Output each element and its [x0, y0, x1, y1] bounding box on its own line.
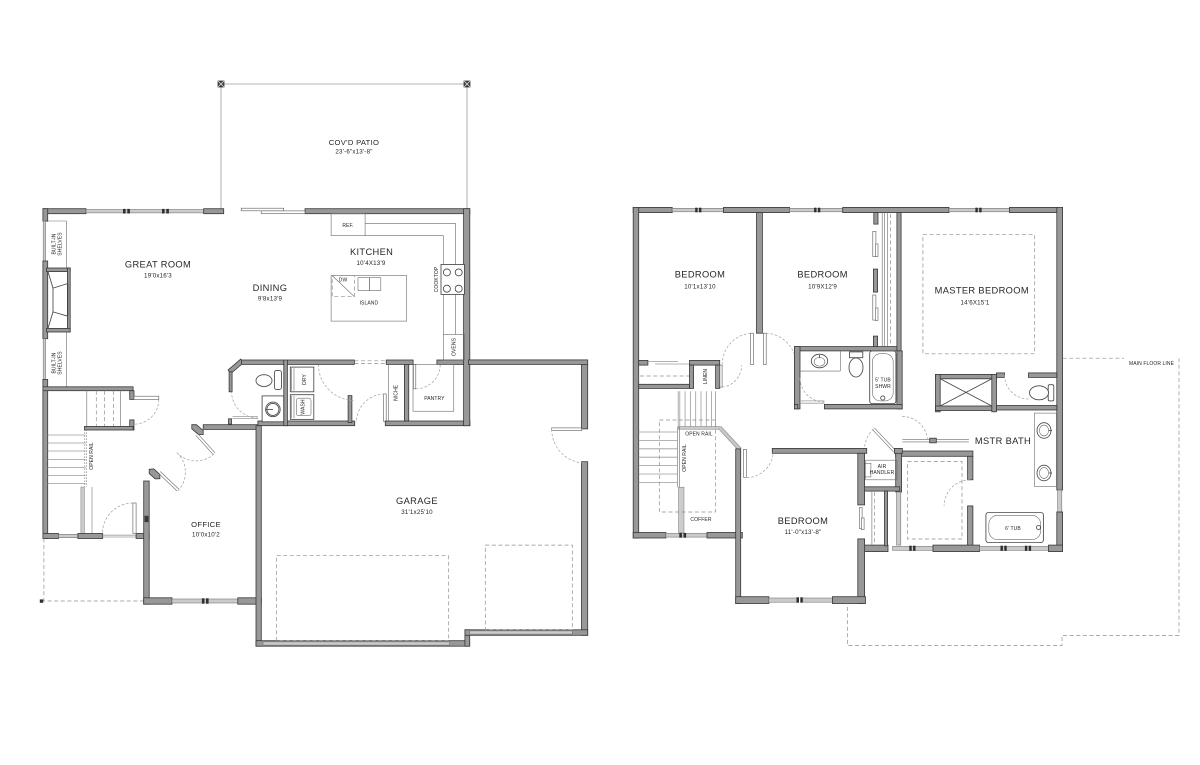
svg-text:31'1x25'10: 31'1x25'10	[401, 509, 433, 516]
svg-text:10'4X13'9: 10'4X13'9	[357, 260, 386, 267]
svg-text:ISLAND: ISLAND	[360, 301, 379, 307]
svg-text:NICHE: NICHE	[394, 384, 400, 401]
svg-text:COOKTOP: COOKTOP	[434, 266, 440, 292]
svg-text:DRY: DRY	[302, 374, 308, 385]
svg-text:OPEN RAIL: OPEN RAIL	[685, 431, 713, 437]
svg-text:DINING: DINING	[253, 283, 288, 293]
svg-text:MASTER BEDROOM: MASTER BEDROOM	[935, 286, 1029, 296]
svg-text:COFFER: COFFER	[690, 517, 711, 523]
svg-text:OPEN RAIL: OPEN RAIL	[682, 444, 688, 472]
svg-text:10'1x13'10: 10'1x13'10	[684, 284, 716, 291]
svg-text:LINEN: LINEN	[703, 369, 709, 385]
svg-text:10'0x10'2: 10'0x10'2	[192, 532, 220, 539]
svg-text:SHELVES: SHELVES	[58, 351, 64, 375]
svg-text:GARAGE: GARAGE	[396, 496, 438, 506]
svg-text:14'6X15'1: 14'6X15'1	[961, 300, 990, 307]
svg-text:5' TUB: 5' TUB	[875, 378, 891, 384]
svg-text:HANDLER: HANDLER	[870, 470, 895, 476]
svg-text:PANTRY: PANTRY	[424, 396, 445, 402]
svg-text:9'8x13'9: 9'8x13'9	[258, 296, 283, 303]
svg-text:10'9X12'9: 10'9X12'9	[808, 284, 837, 291]
svg-text:BEDROOM: BEDROOM	[675, 270, 726, 280]
svg-text:GREAT ROOM: GREAT ROOM	[125, 260, 191, 270]
svg-text:OPEN RAIL: OPEN RAIL	[89, 442, 95, 470]
svg-text:MAIN FLOOR LINE: MAIN FLOOR LINE	[1129, 361, 1175, 367]
svg-text:MSTR BATH: MSTR BATH	[975, 436, 1031, 446]
svg-text:11'-0"x13'-8": 11'-0"x13'-8"	[785, 529, 822, 536]
svg-text:KITCHEN: KITCHEN	[350, 247, 393, 257]
svg-text:BEDROOM: BEDROOM	[797, 270, 848, 280]
svg-text:SHWR: SHWR	[875, 384, 891, 390]
svg-text:6' TUB: 6' TUB	[1005, 526, 1021, 532]
svg-text:WASH: WASH	[301, 399, 307, 415]
svg-text:COV'D PATIO: COV'D PATIO	[329, 138, 379, 147]
svg-text:SHELVES: SHELVES	[58, 232, 64, 256]
svg-text:19'0x16'3: 19'0x16'3	[144, 273, 172, 280]
svg-text:23'-6"x13'-8": 23'-6"x13'-8"	[335, 149, 372, 156]
svg-text:REF.: REF.	[342, 223, 353, 229]
svg-text:OFFICE: OFFICE	[191, 520, 221, 529]
svg-text:DW: DW	[339, 278, 348, 284]
svg-text:OVENS: OVENS	[452, 337, 458, 356]
svg-text:BEDROOM: BEDROOM	[778, 516, 829, 526]
